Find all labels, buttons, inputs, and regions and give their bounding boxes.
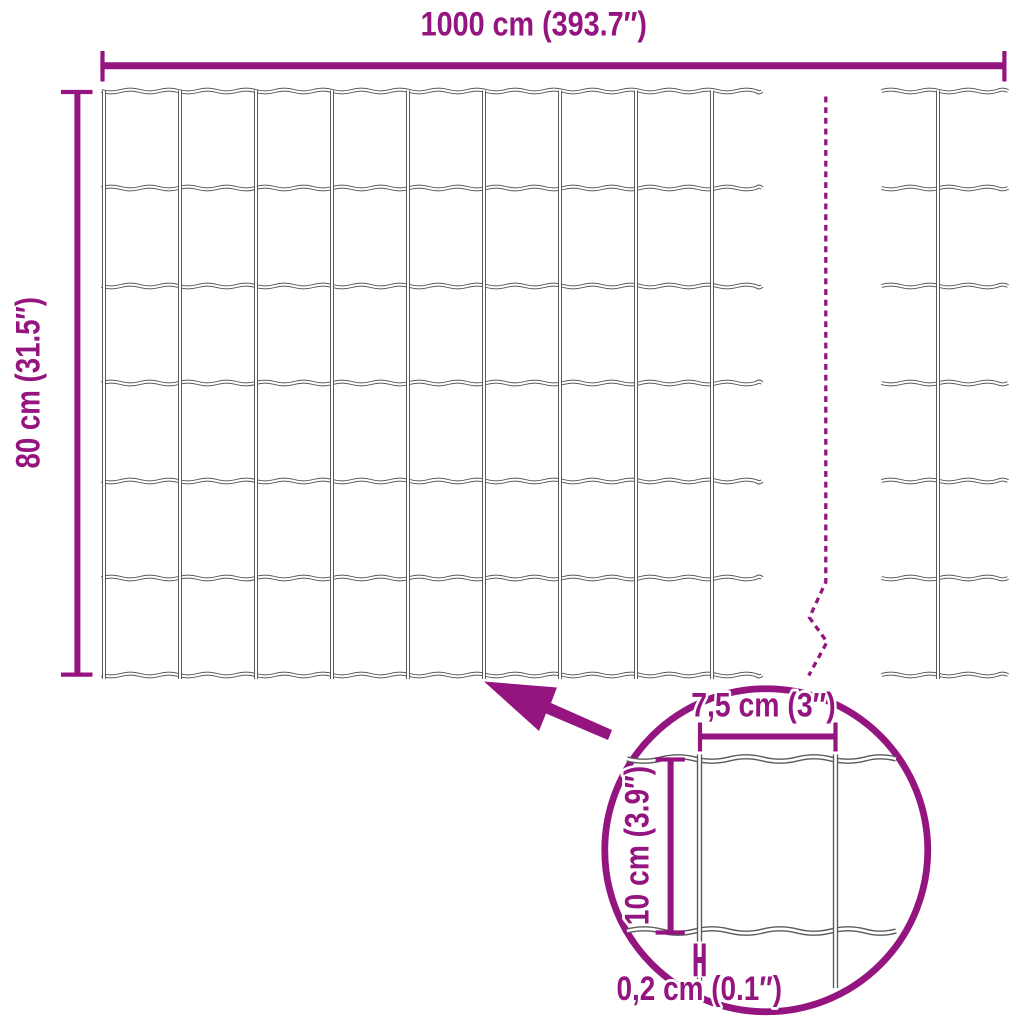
- svg-text:10 cm (3.9″): 10 cm (3.9″): [619, 766, 657, 925]
- svg-text:0,2 cm (0.1″): 0,2 cm (0.1″): [617, 970, 783, 1008]
- svg-text:1000 cm (393.7″): 1000 cm (393.7″): [421, 6, 647, 44]
- svg-text:7,5 cm (3″): 7,5 cm (3″): [691, 687, 836, 725]
- svg-text:80 cm (31.5″): 80 cm (31.5″): [10, 297, 48, 469]
